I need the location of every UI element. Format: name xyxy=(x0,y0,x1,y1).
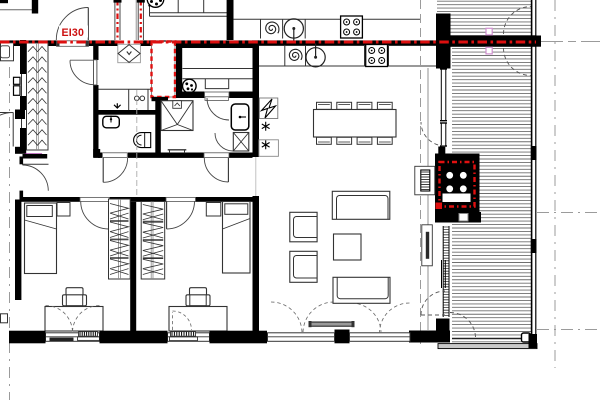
svg-text:EI30: EI30 xyxy=(62,27,85,39)
